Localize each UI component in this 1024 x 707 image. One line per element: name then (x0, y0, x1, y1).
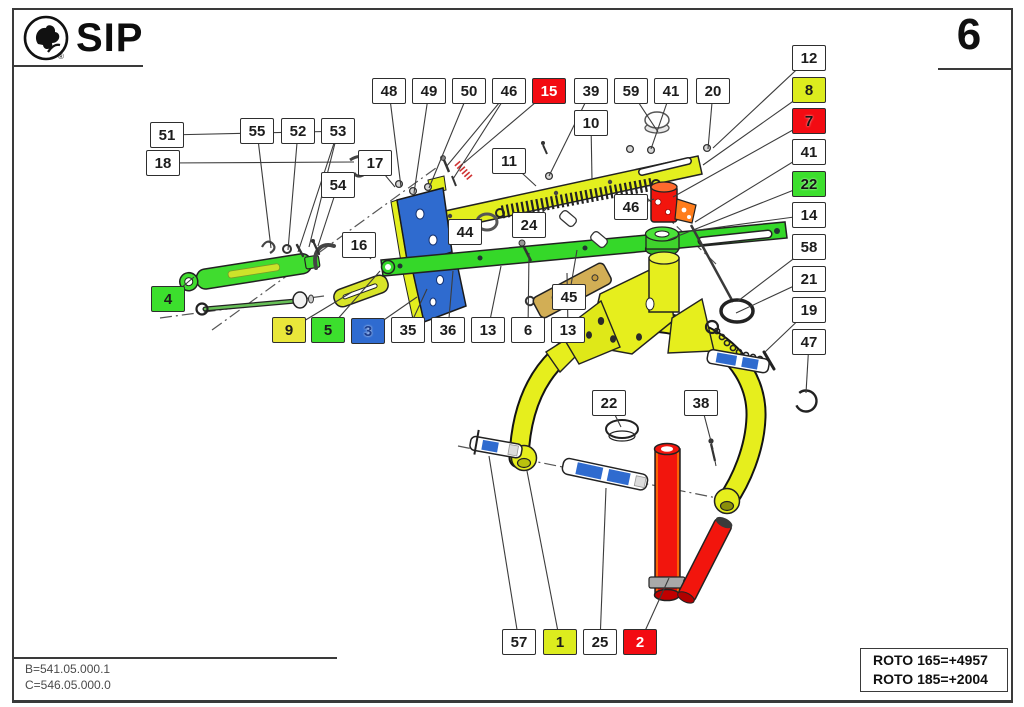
red-spring-pin (457, 163, 471, 179)
yellow-link (332, 273, 391, 309)
hook-latch (350, 156, 369, 176)
white-cap (606, 420, 638, 441)
washer (283, 245, 291, 253)
cotter-pin (708, 438, 716, 466)
top-link-assembly (178, 156, 390, 314)
red-tube-diagonal (676, 514, 734, 605)
pivot-plate-assembly (391, 176, 466, 324)
catalog-page: SIP ® 6 (0, 0, 1024, 707)
parts-diagram (0, 0, 1024, 707)
spring-clip (262, 242, 274, 253)
spindle-long (561, 457, 648, 491)
